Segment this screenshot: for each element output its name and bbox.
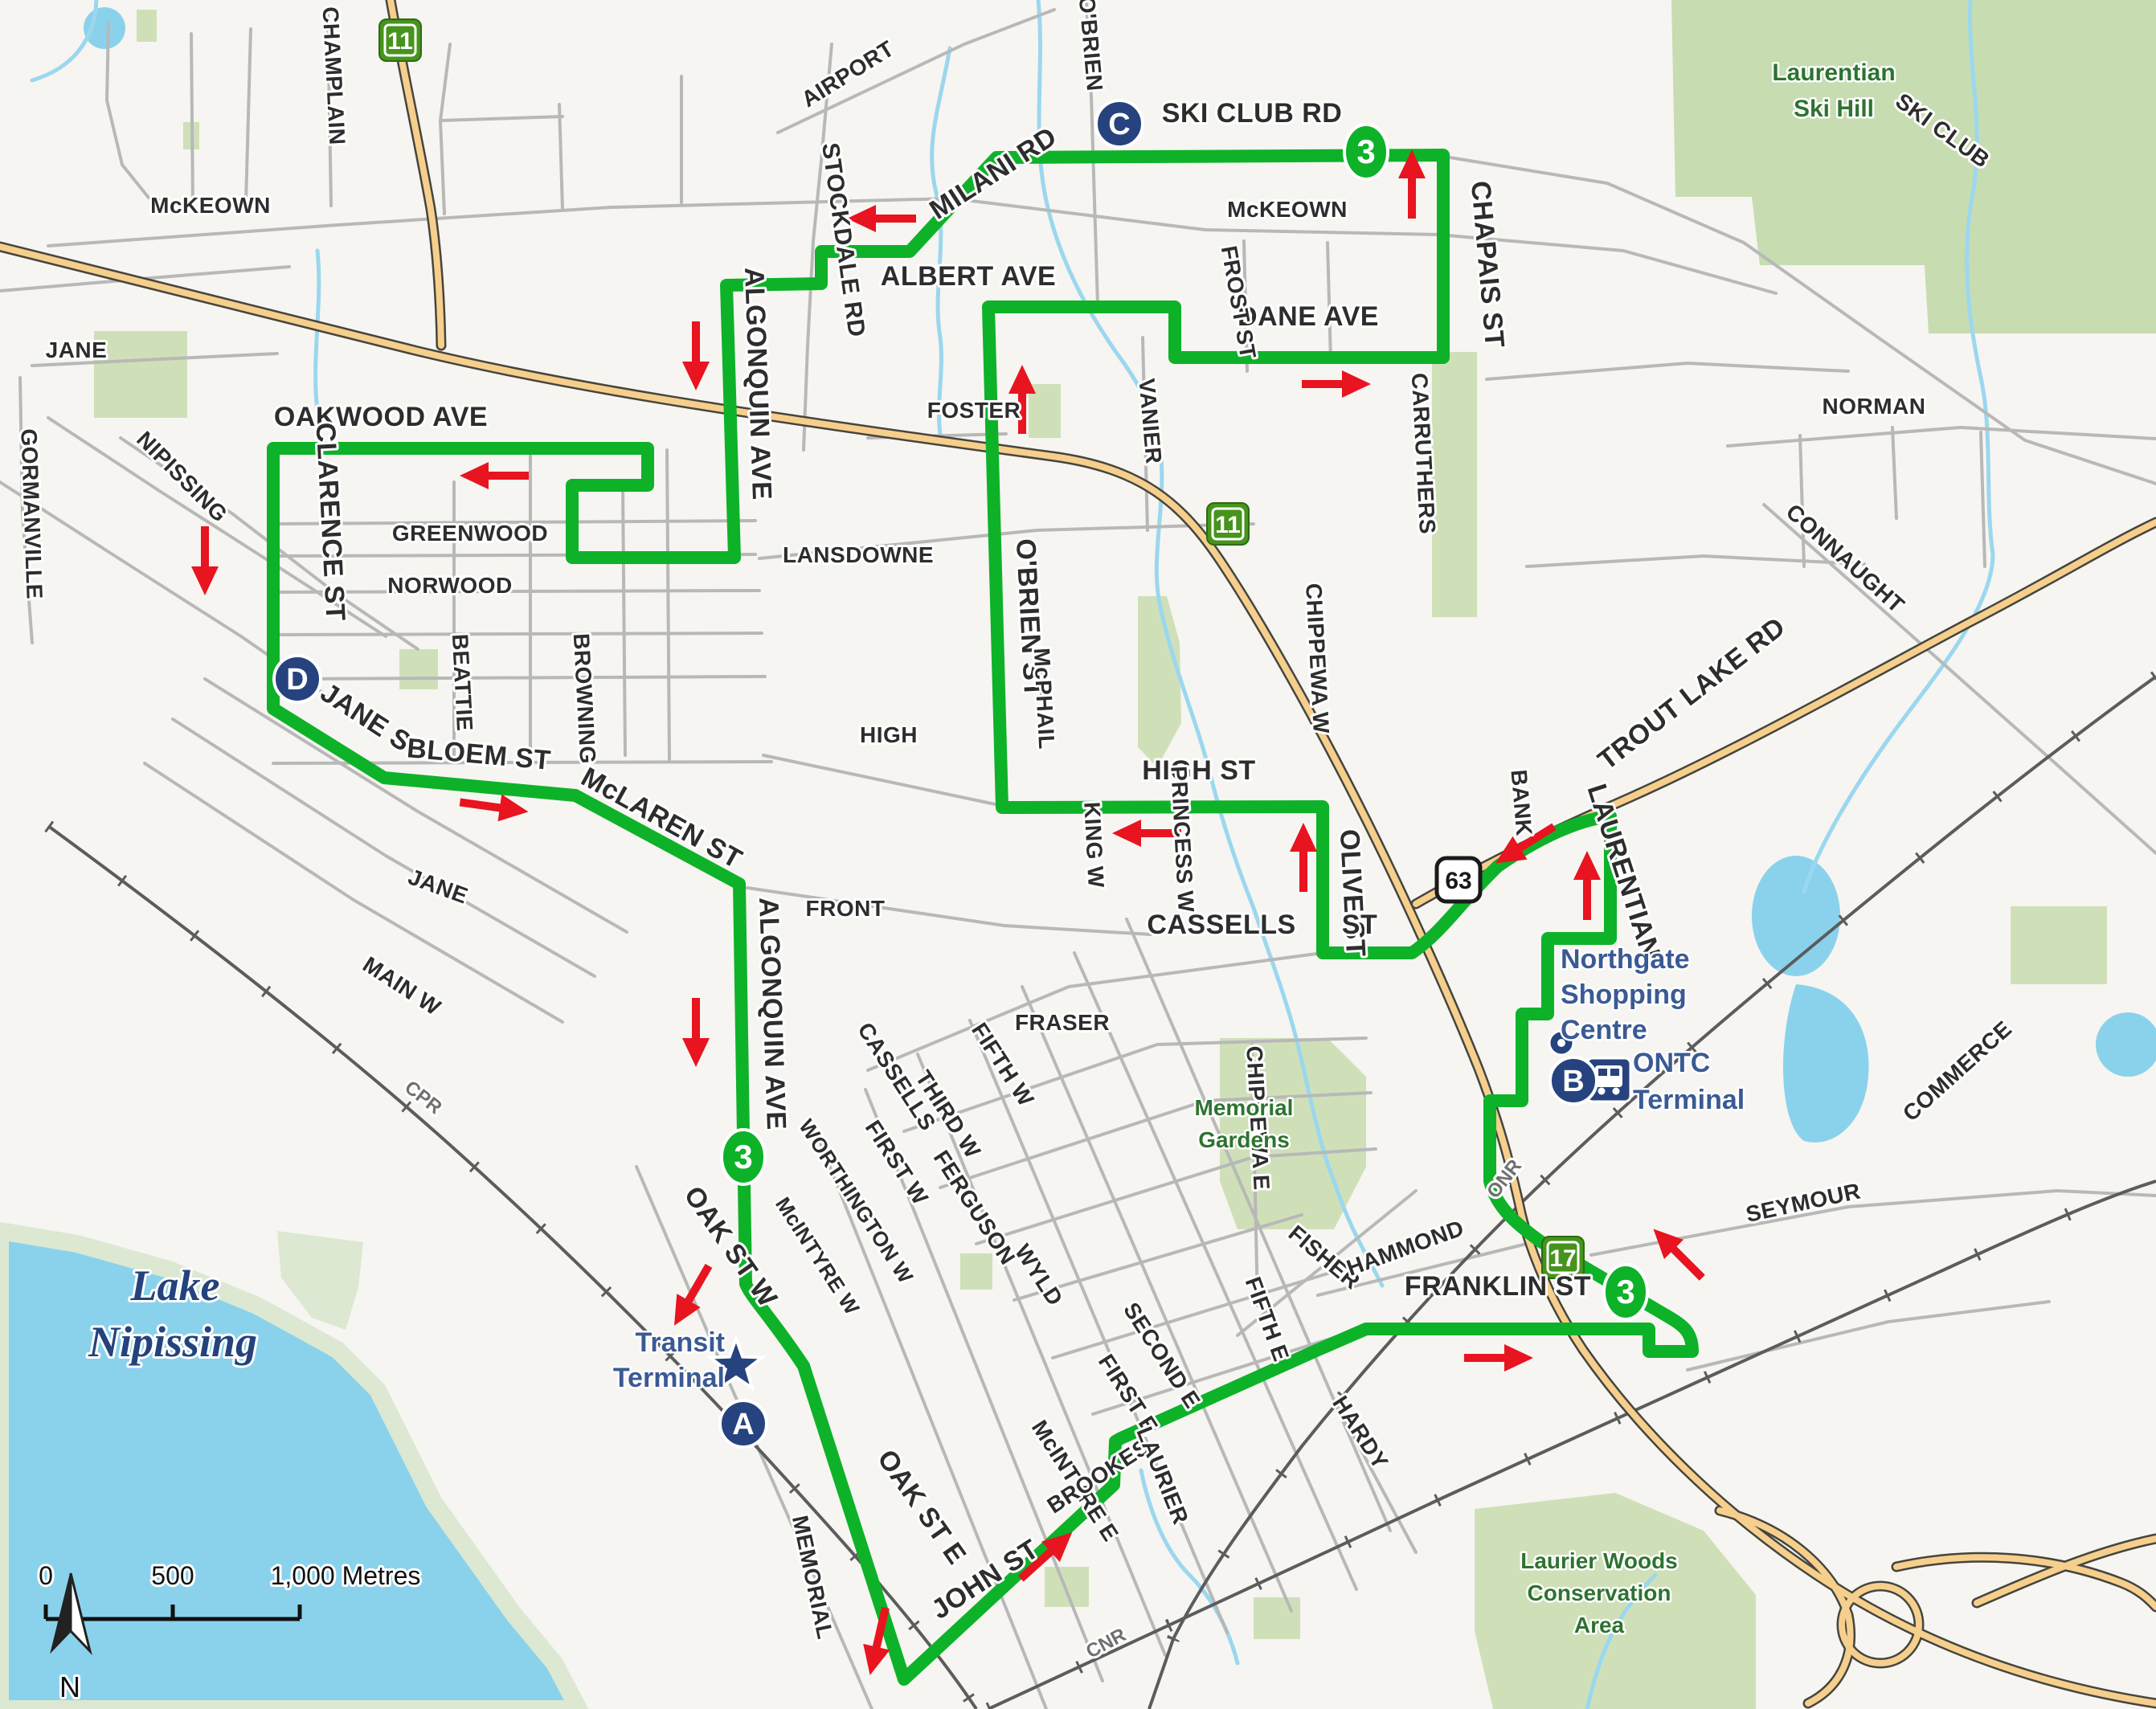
map-label: CASSELLS [1147, 910, 1295, 940]
highway-shield-11: 11 [1207, 503, 1249, 545]
route-badge-number: 3 [1356, 133, 1375, 170]
stop-letter: A [732, 1408, 754, 1441]
bus-window [1598, 1069, 1607, 1076]
small-park [137, 10, 157, 42]
map-label: McKEOWN [1227, 197, 1348, 222]
map-label: FOSTER [927, 398, 1021, 423]
shield-number: 11 [387, 28, 413, 55]
map-label: FRASER [1015, 1010, 1110, 1035]
map-label: McKEOWN [150, 193, 271, 218]
route-3-badge: 3 [1344, 125, 1388, 179]
map-label: KING W [1079, 801, 1109, 889]
map-label: NORMAN [1823, 394, 1926, 419]
map-label: Terminal [1633, 1085, 1745, 1115]
carruthers-greenspace [1432, 352, 1477, 617]
arrow-shaft [692, 998, 700, 1040]
map-label: BEATTIE [448, 633, 477, 732]
map-label: DANE AVE [1238, 301, 1379, 332]
map-label: HIGH ST [1142, 755, 1255, 786]
scale-label: 1,000 Metres [271, 1561, 421, 1590]
small-park [1254, 1597, 1300, 1639]
map-label: FRONT [806, 896, 886, 921]
map-label: Area [1574, 1613, 1625, 1637]
map-label: JANE [46, 337, 108, 362]
map-label: Ski Hill [1794, 96, 1874, 122]
arrow-shaft [1408, 177, 1416, 219]
route-3-badge: 3 [1604, 1265, 1647, 1319]
arrow-shaft [1583, 878, 1591, 920]
route-badge-number: 3 [1616, 1273, 1634, 1310]
map-label: Lake [130, 1261, 220, 1310]
arrow-shaft [487, 472, 529, 480]
map-label: Transit [636, 1327, 725, 1358]
arrow-shaft [1299, 850, 1307, 892]
scale-label: 0 [39, 1561, 53, 1590]
shield-number: 11 [1215, 512, 1241, 538]
arrow-shaft [874, 215, 916, 223]
arrow-shaft [201, 526, 209, 568]
stop-C: C [1096, 100, 1143, 147]
map-label: ONTC [1633, 1048, 1710, 1078]
map-label: Gardens [1198, 1127, 1290, 1152]
shield-number: 17 [1549, 1245, 1576, 1272]
stop-letter: C [1108, 108, 1130, 141]
stop-A: A [720, 1400, 767, 1447]
map-label: NORWOOD [387, 573, 512, 598]
map-label: FRANKLIN ST [1405, 1271, 1591, 1302]
small-park [960, 1253, 992, 1290]
small-park [399, 649, 438, 689]
small-park [1045, 1567, 1089, 1607]
stop-letter: D [286, 663, 308, 697]
stop-D: D [274, 656, 321, 702]
map-label: ALBERT AVE [881, 261, 1056, 292]
map-label: HIGH [860, 722, 918, 747]
map-label: McPHAIL [1029, 648, 1060, 750]
north-label: N [59, 1670, 80, 1703]
route-3-badge: 3 [722, 1130, 765, 1184]
stop-letter: B [1562, 1065, 1584, 1098]
small-park [2011, 906, 2107, 984]
highway-shield-63: 63 [1437, 858, 1480, 902]
arrow-shaft [692, 321, 700, 363]
map-label: ST [1342, 910, 1377, 940]
map-label: Centre [1561, 1015, 1647, 1045]
transit-route-map: 11111763 333 SKI CLUB RDMILANI RDSTOCKDA… [0, 0, 2156, 1709]
arrow-shaft [1302, 380, 1344, 388]
scale-label: 500 [151, 1561, 194, 1590]
map-label: Laurier Woods [1520, 1548, 1678, 1573]
highway-shield-11: 11 [379, 19, 421, 61]
map-label: Terminal [613, 1363, 725, 1393]
map-label: Laurentian [1772, 59, 1895, 86]
map-label: OAKWOOD AVE [274, 402, 488, 432]
map-label: SKI CLUB RD [1162, 98, 1343, 129]
bus-wheel [1613, 1088, 1620, 1095]
small-park [94, 331, 187, 418]
map-canvas: 11111763 333 SKI CLUB RDMILANI RDSTOCKDA… [0, 0, 2156, 1709]
map-label: Northgate [1561, 944, 1690, 975]
map-label: Nipissing [88, 1318, 257, 1366]
map-label: GREENWOOD [392, 521, 548, 546]
arrow-shaft [1464, 1354, 1506, 1362]
shield-number: 63 [1445, 868, 1471, 894]
bus-wheel [1598, 1088, 1606, 1095]
bus-window [1610, 1069, 1619, 1076]
map-label: Shopping [1561, 979, 1687, 1010]
map-label: LANSDOWNE [783, 542, 934, 567]
map-label: Memorial [1195, 1095, 1294, 1120]
map-label: Conservation [1528, 1580, 1671, 1605]
route-badge-number: 3 [734, 1138, 752, 1175]
stop-B: B [1550, 1057, 1597, 1104]
